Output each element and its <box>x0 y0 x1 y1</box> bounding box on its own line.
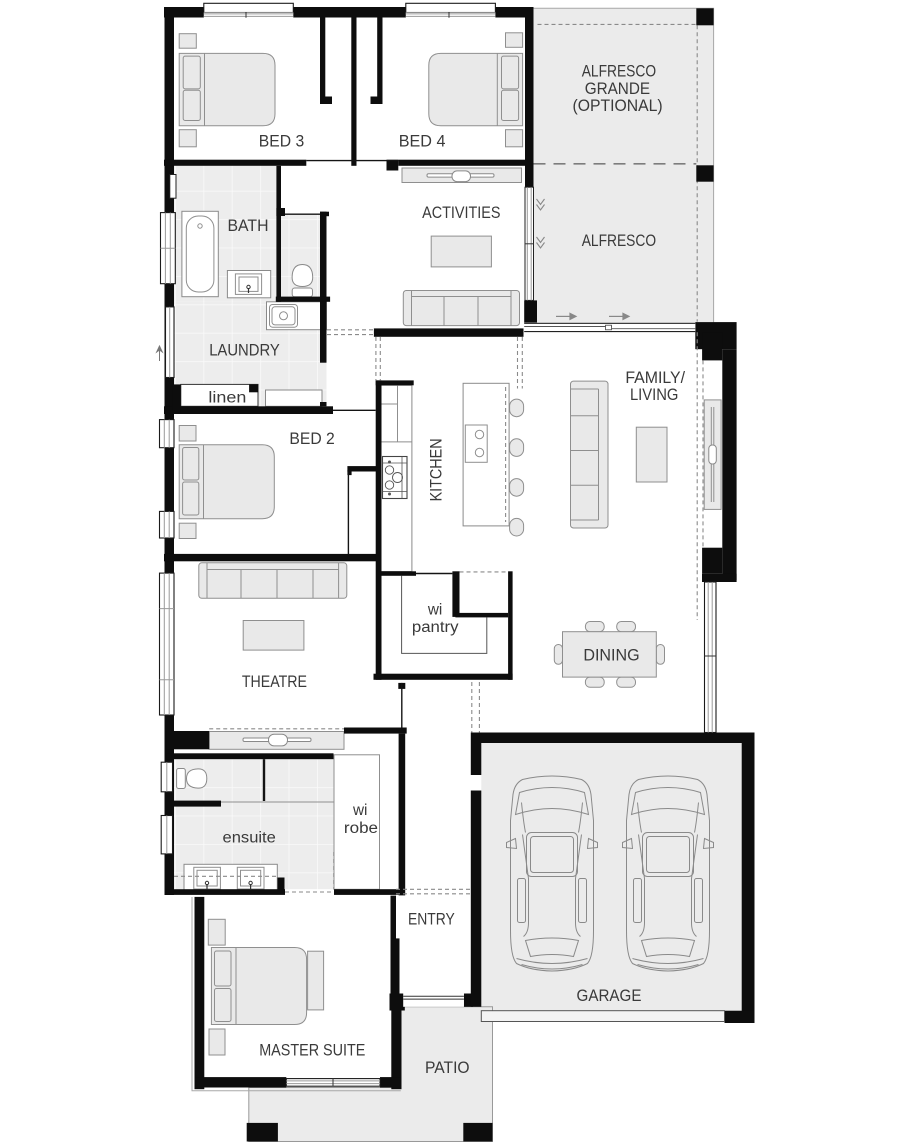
svg-text:ALFRESCO: ALFRESCO <box>582 232 656 250</box>
svg-text:BED 3: BED 3 <box>259 132 304 150</box>
svg-text:LAUNDRY: LAUNDRY <box>209 342 280 360</box>
svg-text:ENTRY: ENTRY <box>408 911 455 929</box>
svg-text:GRANDE: GRANDE <box>585 80 651 98</box>
svg-text:BATH: BATH <box>228 217 269 235</box>
svg-text:FAMILY/: FAMILY/ <box>625 369 685 387</box>
svg-text:ACTIVITIES: ACTIVITIES <box>422 204 501 222</box>
svg-text:BED 2: BED 2 <box>289 430 334 448</box>
svg-text:BED 4: BED 4 <box>399 132 446 150</box>
svg-text:(OPTIONAL): (OPTIONAL) <box>573 97 663 115</box>
svg-text:ALFRESCO: ALFRESCO <box>582 63 656 81</box>
svg-text:robe: robe <box>344 820 378 837</box>
svg-text:GARAGE: GARAGE <box>577 987 642 1005</box>
svg-text:PATIO: PATIO <box>425 1059 470 1077</box>
svg-text:wi: wi <box>427 602 442 619</box>
svg-text:DINING: DINING <box>583 647 639 665</box>
svg-text:ensuite: ensuite <box>223 830 276 847</box>
svg-text:KITCHEN: KITCHEN <box>428 438 446 501</box>
svg-text:THEATRE: THEATRE <box>242 673 307 691</box>
svg-text:linen: linen <box>208 390 246 407</box>
svg-text:LIVING: LIVING <box>630 386 679 404</box>
svg-text:wi: wi <box>352 802 367 819</box>
svg-text:pantry: pantry <box>412 619 459 636</box>
svg-text:MASTER SUITE: MASTER SUITE <box>259 1041 365 1059</box>
